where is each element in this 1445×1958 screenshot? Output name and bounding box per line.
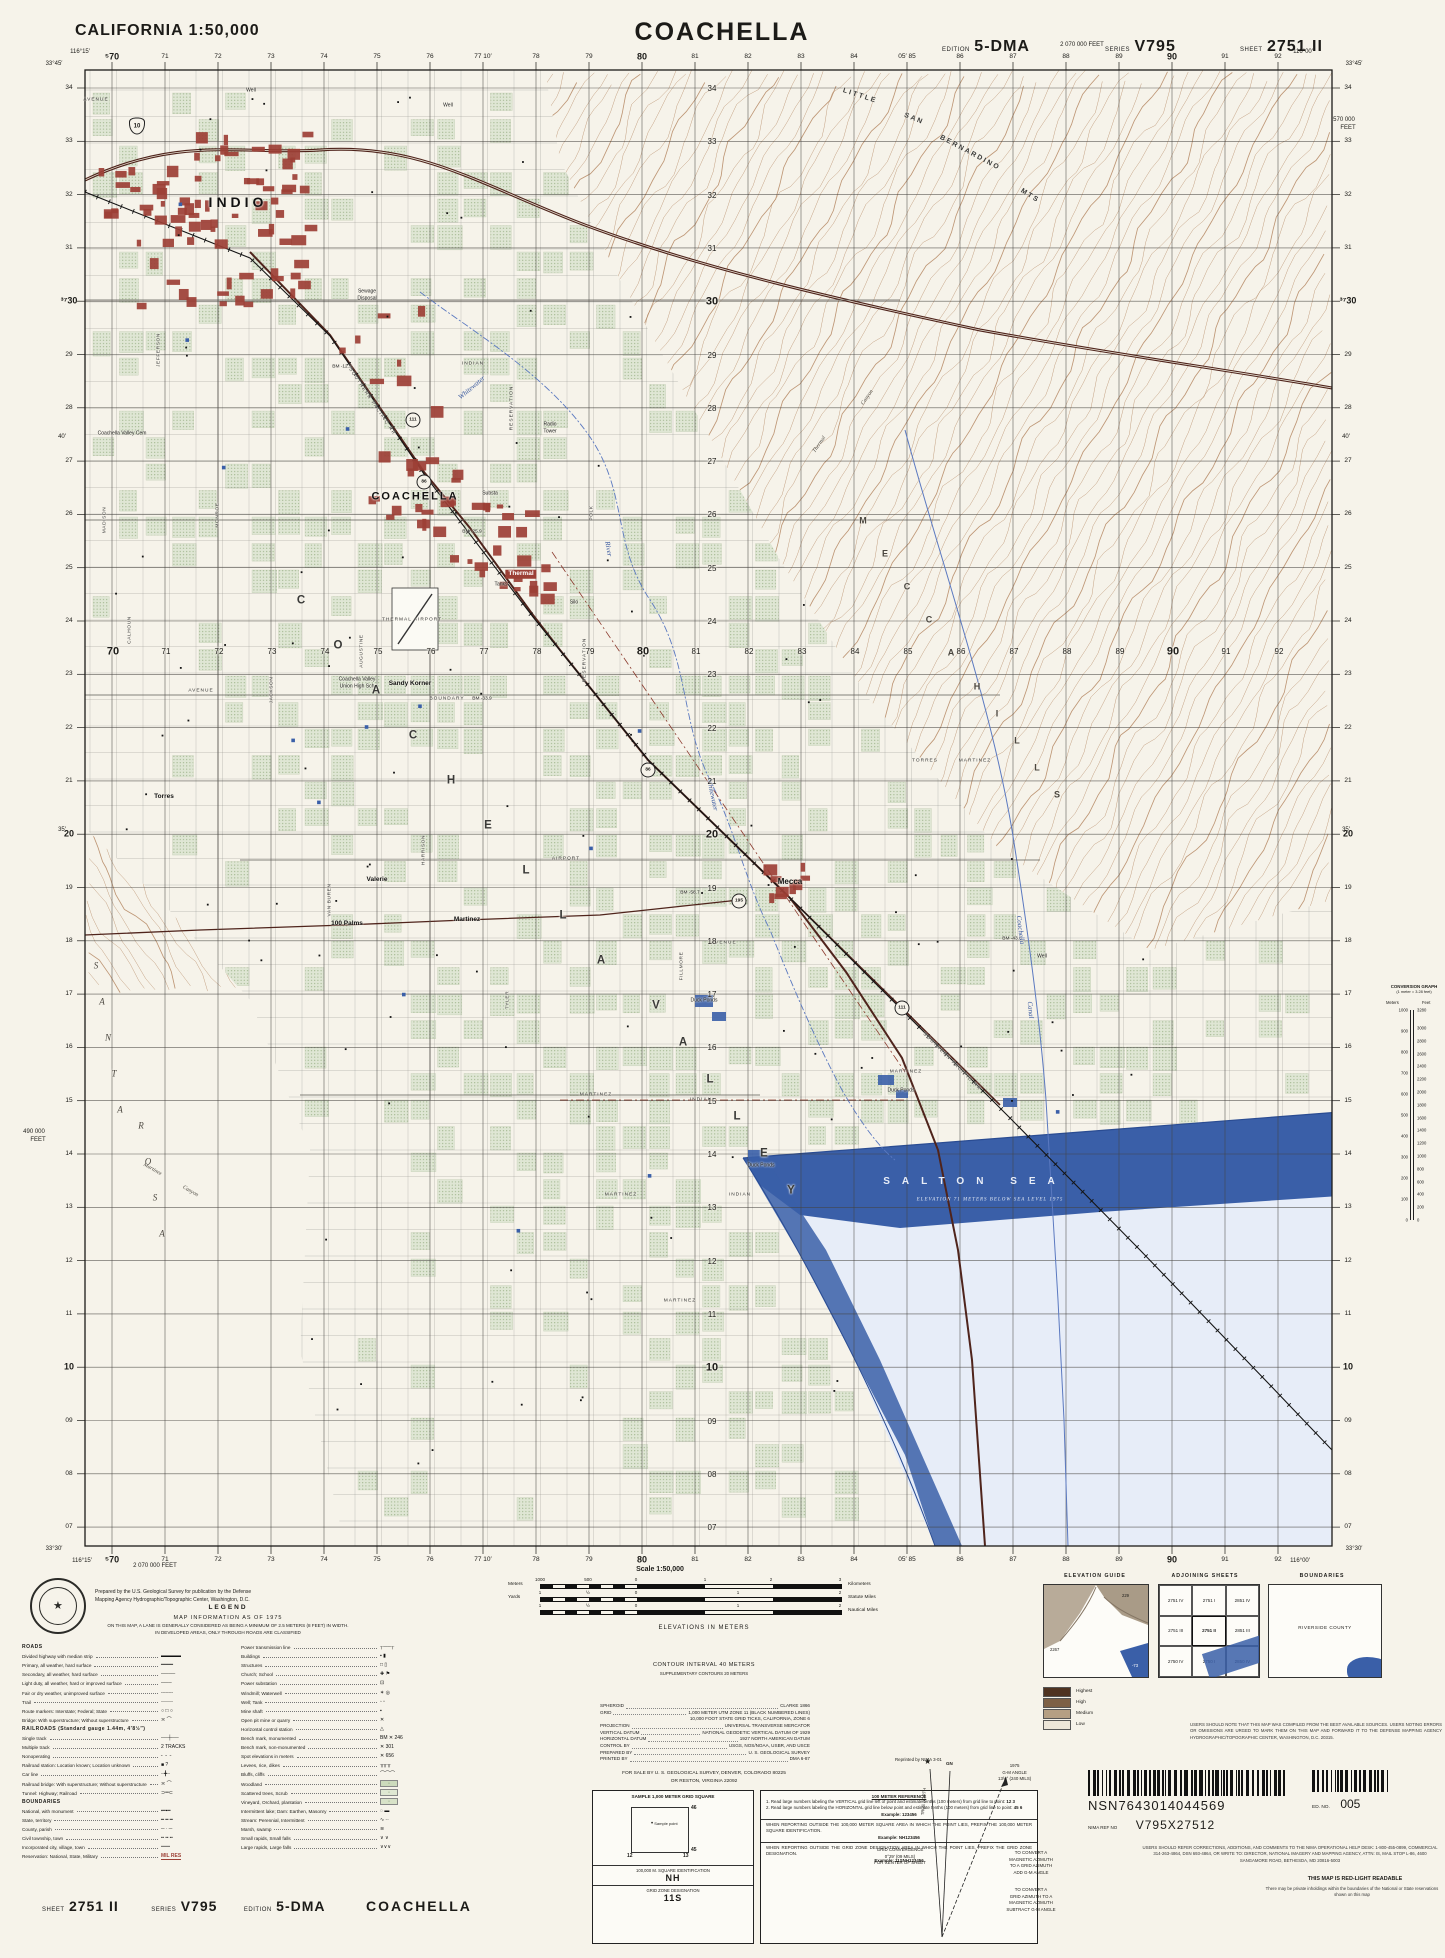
legend-row: Primary, all weather, hard surface━━━━ (22, 1659, 215, 1668)
sample-grid-square-panel: SAMPLE 1,000 METER GRID SQUARE • Sample … (592, 1790, 754, 1944)
conversion-ruler (1410, 1010, 1414, 1220)
legend-row: Trail┄┄┄┄ (22, 1696, 215, 1705)
margin-label: 116°00′ (1290, 1558, 1310, 1564)
margin-label: 116°00′ (1293, 49, 1313, 55)
legend-row: Power substation⊡ (241, 1677, 434, 1686)
margin-label: 2 070 000 FEET (1060, 42, 1104, 48)
sample-num-45: 45 (691, 1847, 697, 1853)
legend-row: Open pit mine or quarry✕ (241, 1714, 434, 1723)
margin-label: 490 000 (23, 1129, 45, 1135)
legend-section-header: RAILROADS (Standard gauge 1.44m, 4′8½″) (22, 1723, 215, 1732)
elevation-guide-box: 2267 229 -73 (1043, 1584, 1149, 1678)
datum-row: PROJECTIONUNIVERSAL TRANSVERSE MERCATOR (600, 1723, 810, 1730)
elevation-swatch-row: High (1043, 1697, 1093, 1708)
footer-title: COACHELLA (366, 1898, 472, 1914)
elevations-note: ELEVATIONS IN METERS (658, 1625, 749, 1631)
adjoining-sheet-cell: 2751 II (1192, 1616, 1225, 1647)
legend-row: Fair or dry weather, unimproved surface╌… (22, 1686, 215, 1695)
elevation-spot-mid: 229 (1122, 1593, 1129, 1598)
datum-table: SPHEROIDCLARKE 1866GRID1,000 METER UTM Z… (600, 1703, 810, 1763)
datum-row: CONTROL BYUSGS, NOS/NOAA, USBR, AND USCE (600, 1743, 810, 1750)
adjoining-sheet-cell: 2750 IV (1159, 1646, 1192, 1677)
legend-row: Nonoperating╴ ╴ ╴ (22, 1750, 215, 1759)
legend-row: Bridge: With superstructure; Without sup… (22, 1714, 215, 1723)
legend-row: Railroad station: Location known; Locati… (22, 1759, 215, 1768)
legend-row: Buildings▪ ▮ (241, 1650, 434, 1659)
legend-row: Railroad bridge: With superstructure; Wi… (22, 1777, 215, 1786)
margin-label: FEET (1340, 125, 1355, 131)
gm-angle-block: 1975 G-M ANGLE 13½° (240 MILS) (998, 1763, 1031, 1783)
margin-label: 40′ (58, 434, 66, 440)
sale-note1: FOR SALE BY U. S. GEOLOGICAL SURVEY, DEN… (622, 1771, 786, 1776)
legend-row: Bench mark, non-monumented✕ 301 (241, 1741, 434, 1750)
sources-note: USERS SHOULD NOTE THAT THIS MAP WAS COMP… (1190, 1722, 1442, 1741)
sample-point-label: • Sample point (651, 1821, 678, 1827)
legend-row: State, territory━ ━ ━ (22, 1814, 215, 1823)
scale-bar: Meters10005000123Kilometers (500, 1578, 900, 1588)
sample-num-13: 13 (683, 1853, 689, 1859)
nima-ref-label: NIMA REF NO (1088, 1825, 1117, 1830)
elevation-swatch-row: Highest (1043, 1686, 1093, 1697)
edition-barcode (1312, 1770, 1390, 1792)
sample-num-46: 46 (691, 1805, 697, 1811)
legend-row: Multiple track2 TRACKS (22, 1741, 215, 1750)
legend-row: Stream: Perennial, Intermittent∿ ┈ (241, 1814, 434, 1823)
red-light-note: THIS MAP IS RED-LIGHT READABLE (1308, 1876, 1403, 1882)
conversion-note: (1 meter = 3.28 feet) (1384, 989, 1444, 994)
adjoining-sheet-cell: 2751 III (1159, 1616, 1192, 1647)
datum-row: 10,000 FOOT STATE GRID TICKS, CALIFORNIA… (600, 1716, 810, 1723)
sale-note2: OR RESTON, VIRGINIA 22092 (671, 1779, 738, 1784)
margin-label: 33°45′ (46, 61, 63, 67)
sample-title: SAMPLE 1,000 METER GRID SQUARE (593, 1794, 753, 1799)
declination-diagram: ★ GN TRUE NORTH 1975 G-M ANGLE 13½° (240… (880, 1755, 1080, 1940)
margin-label: FEET (30, 1137, 45, 1143)
production-line1: Prepared by the U.S. Geological Survey f… (95, 1588, 251, 1596)
legend-row: Mine shaft▪ (241, 1705, 434, 1714)
adjoining-sheet-cell: 2751 I (1192, 1585, 1225, 1616)
elevation-spot-sea: -73 (1132, 1663, 1138, 1668)
legend-row: Car line┄╋┄ (22, 1768, 215, 1777)
legend-row: Structures□ ▯ (241, 1659, 434, 1668)
margin-label: 35′ (1342, 827, 1350, 833)
legend-row: Power transmission line┬──┬ (241, 1641, 434, 1650)
margin-label: 33°30′ (1346, 1546, 1363, 1552)
conversion-feet-label: Feet (1422, 1000, 1430, 1005)
legend-row: Bluffs, cliffs⌒⌒⌒ (241, 1768, 434, 1777)
production-credit: Prepared by the U.S. Geological Survey f… (95, 1588, 251, 1604)
to-grid-azimuth-note: TO CONVERT AMAGNETIC AZIMUTHTO A GRID AZ… (988, 1850, 1074, 1876)
adjoining-sheet-cell: 2851 IV (1226, 1585, 1259, 1616)
legend-info: MAP INFORMATION AS OF 1975 (22, 1615, 434, 1621)
legend-row: Bench mark, monumentedBM ✕ 246 (241, 1732, 434, 1741)
scale-bar: Yards1½012Statute Miles (500, 1591, 900, 1601)
margin-label: 116°15′ (72, 1558, 92, 1564)
footer-series-label: SERIES (151, 1907, 176, 1913)
legend-row: Single track──┼── (22, 1732, 215, 1741)
production-line2: Mapping Agency Hydrographic/Topographic … (95, 1596, 251, 1604)
contour-interval: CONTOUR INTERVAL 40 METERS (653, 1662, 755, 1668)
margin-label: 33°30′ (46, 1546, 63, 1552)
scale-bar: 1½012Nautical Miles (500, 1604, 900, 1614)
legend-section-header: BOUNDARIES (22, 1796, 215, 1805)
legend-row: Vineyard, Orchard, plantation∴ (241, 1796, 434, 1805)
legend-note1: ON THIS MAP, A LANE IS GENERALLY CONSIDE… (22, 1623, 434, 1628)
boundaries-box: RIVERSIDE COUNTY (1268, 1584, 1382, 1678)
boundaries-sea-blob (1347, 1657, 1382, 1678)
margin-label: 116°15′ (70, 49, 90, 55)
nsn-number: NSN7643014044569 (1088, 1798, 1288, 1813)
edition-number-value: 005 (1340, 1797, 1360, 1811)
footer-sheet-line: SHEET 2751 II SERIES V795 EDITION 5-DMA … (42, 1898, 472, 1916)
helpdesk-note: USERS SHOULD REFER CORRECTIONS, ADDITION… (1140, 1845, 1440, 1864)
legend-row: Spot elevations in meters✕ 656 (241, 1750, 434, 1759)
conversion-graph: CONVERSION GRAPH (1 meter = 3.28 feet) M… (1384, 984, 1444, 1236)
legend-row: Large rapids, Large falls∨∨∨ (241, 1841, 434, 1850)
legend-row: Horizontal control station△ (241, 1723, 434, 1732)
sample-square (631, 1807, 689, 1853)
legend-row: Tunnel: Highway; Railroad⊃═⊂ (22, 1787, 215, 1796)
legend-row: Small rapids, Small falls∨ ∨ (241, 1832, 434, 1841)
legend-row: Secondary, all weather, hard surface──── (22, 1668, 215, 1677)
legend-row: Scattered trees, Scrub∴ (241, 1787, 434, 1796)
legend-row: Civil township, town╍ ╍ ╍ (22, 1832, 215, 1841)
legend-row: Marsh, swamp≋ (241, 1823, 434, 1832)
datum-row: VERTICAL DATUMNATIONAL GEODETIC VERTICAL… (600, 1730, 810, 1737)
to-magnetic-azimuth-note: TO CONVERT AGRID AZIMUTH TO AMAGNETIC AZ… (988, 1887, 1074, 1913)
datum-row: HORIZONTAL DATUM1927 NORTH AMERICAN DATU… (600, 1736, 810, 1743)
legend-row: Church; School✚ ⚑ (241, 1668, 434, 1677)
legend-left-column: ROADSDivided highway with median strip▬▬… (22, 1641, 215, 1859)
footer-sheet-value: 2751 II (69, 1898, 119, 1914)
conversion-meters-label: Meters (1386, 1000, 1399, 1005)
legend-row: National, with monument▪━▪━ (22, 1805, 215, 1814)
legend-row: Woodland∴ (241, 1777, 434, 1786)
datum-row: GRID1,000 METER UTM ZONE 11 (BLACK NUMBE… (600, 1710, 810, 1717)
margin-label: 35′ (58, 827, 66, 833)
legend-row: Intermittent lake; Dam: Earthen, Masonry… (241, 1805, 434, 1814)
inholdings-note: There may be private inholdings within t… (1262, 1886, 1442, 1899)
adjoining-sheets-title: ADJOINING SHEETS (1171, 1573, 1238, 1579)
margin-label: 570 000 (1333, 117, 1355, 123)
legend-row: Levees, rice, dikes╥╥╥ (241, 1759, 434, 1768)
sample-num-12: 12 (627, 1853, 633, 1859)
datum-row: PRINTED BYDMA 6-87 (600, 1756, 810, 1763)
legend-section-header: ROADS (22, 1641, 215, 1650)
margin-label: 33°45′ (1346, 61, 1363, 67)
margin-label: 2 070 000 FEET (133, 1563, 177, 1569)
legend-row: County, parish─ ∙ ─ (22, 1823, 215, 1832)
supplementary-contours: SUPPLEMENTARY CONTOURS 20 METERS (660, 1671, 748, 1676)
footer-edition-value: 5-DMA (276, 1898, 325, 1914)
boundaries-title: BOUNDARIES (1300, 1573, 1345, 1579)
elevation-spot-high: 2267 (1050, 1647, 1059, 1652)
footer-edition-label: EDITION (244, 1907, 272, 1913)
datum-row: SPHEROIDCLARKE 1866 (600, 1703, 810, 1710)
edition-number-label: ED. NO. (1312, 1805, 1330, 1810)
elevation-swatch-row: Low (1043, 1719, 1093, 1730)
footer-series-value: V795 (181, 1898, 218, 1914)
adjoining-sheet-cell: 2751 IV (1159, 1585, 1192, 1616)
legend: LEGEND MAP INFORMATION AS OF 1975 ON THI… (22, 1604, 434, 1859)
legend-row: Route markers: Interstate; Federal; Stat… (22, 1705, 215, 1714)
legend-row: Well; Tank◦ ▫ (241, 1696, 434, 1705)
edition-number-block: ED. NO. 005 (1312, 1770, 1390, 1813)
elevation-swatch-row: Medium (1043, 1708, 1093, 1719)
grid-north-label: GN (946, 1761, 953, 1766)
county-label: RIVERSIDE COUNTY (1269, 1625, 1381, 1630)
margin-label: 40′ (1342, 434, 1350, 440)
legend-row: Reservation: National, State, MilitaryMI… (22, 1850, 215, 1859)
legend-row: Windmill; Waterwell✶ ◎ (241, 1686, 434, 1695)
elevation-swatches: HighestHighMediumLow (1043, 1686, 1093, 1730)
nima-ref-value: V795X27512 (1136, 1818, 1215, 1832)
nsn-barcode (1088, 1770, 1288, 1796)
nsn-block: NSN7643014044569 NIMA REF NO V795X27512 (1088, 1770, 1288, 1834)
scale-title: Scale 1:50,000 (636, 1566, 684, 1573)
legend-row: Light duty, all weather, hard or improve… (22, 1677, 215, 1686)
legend-row: Incorporated city, village, town┅┅┅ (22, 1841, 215, 1850)
legend-row: Divided highway with median strip▬▬▬▬ (22, 1650, 215, 1659)
legend-note2: IN DEVELOPED AREAS, ONLY THROUGH ROADS A… (22, 1630, 434, 1635)
datum-row: PREPARED BYU. S. GEOLOGICAL SURVEY (600, 1750, 810, 1757)
map-sheet: CALIFORNIA 1:50,000 COACHELLA EDITION 5-… (0, 0, 1445, 1958)
square-id-value: NH (593, 1873, 753, 1883)
legend-right-column: Power transmission line┬──┬Buildings▪ ▮S… (241, 1641, 434, 1859)
adjoining-sheets-box: 2751 IV2751 I2851 IV2751 III2751 II2851 … (1158, 1584, 1260, 1678)
legend-title: LEGEND (22, 1604, 434, 1611)
elevation-guide-title: ELEVATION GUIDE (1064, 1573, 1126, 1579)
zone-value: 11S (593, 1893, 753, 1903)
grid-convergence-block: GRID CONVERGENCE0°29′ (09 MILS)FOR CENTE… (860, 1847, 940, 1867)
true-north-star-icon: ★ (924, 1757, 931, 1766)
footer-sheet-label: SHEET (42, 1907, 65, 1913)
